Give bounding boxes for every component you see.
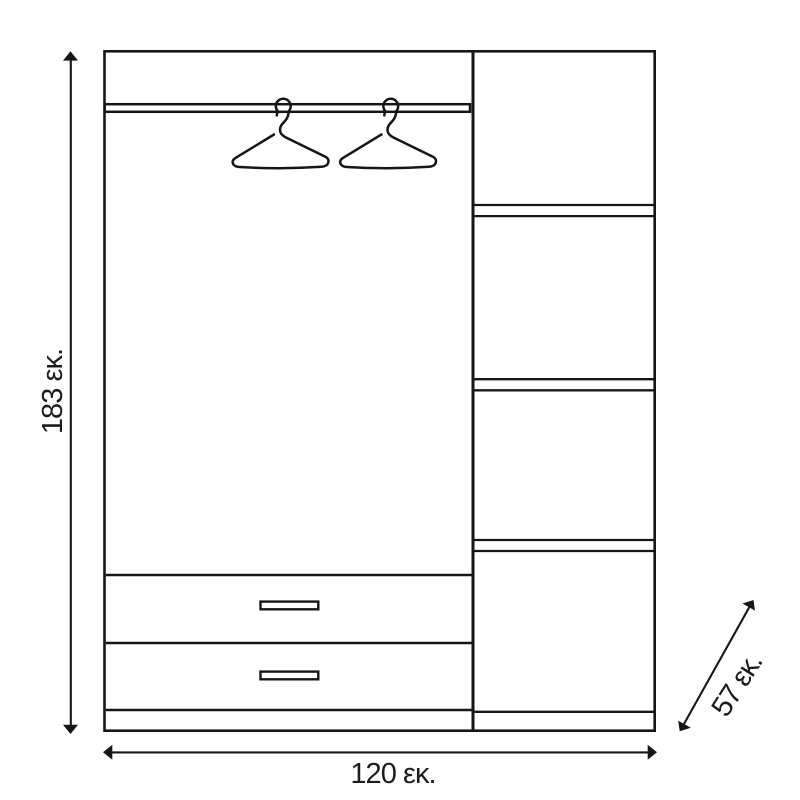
svg-text:183 εκ.: 183 εκ. xyxy=(37,349,69,434)
svg-text:120 εκ.: 120 εκ. xyxy=(350,758,435,790)
